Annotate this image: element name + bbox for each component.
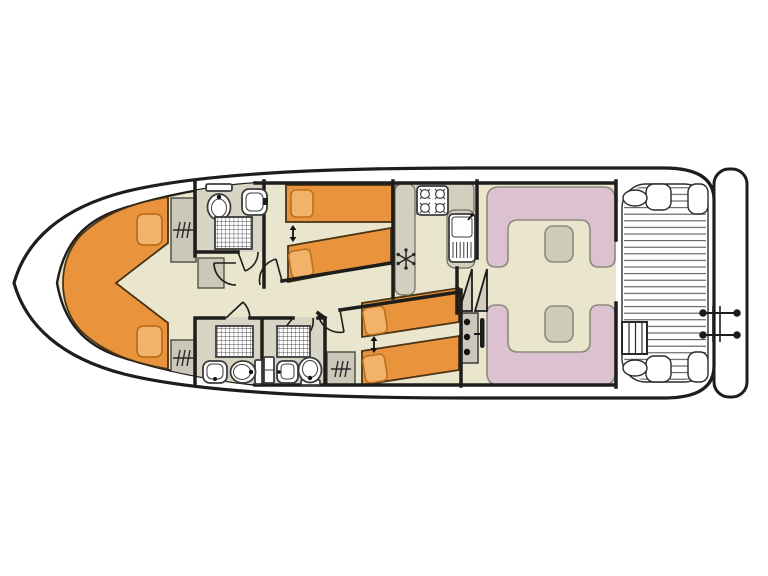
pillow — [291, 190, 313, 217]
pillow — [362, 353, 388, 383]
steering-wheel — [480, 318, 485, 348]
forward-cabin-bed — [286, 185, 392, 222]
floor-plan-page — [0, 0, 768, 576]
wardrobe — [327, 352, 355, 385]
toilet-icon — [231, 360, 263, 384]
pillow — [288, 248, 314, 278]
saloon-dinette — [487, 187, 615, 267]
swim-platform — [714, 169, 747, 397]
galley-sink-icon — [449, 213, 475, 262]
deck-steps — [622, 322, 647, 354]
wardrobe — [171, 340, 196, 376]
bathroom-cabinet — [264, 357, 274, 383]
wardrobe — [171, 198, 196, 262]
pillow — [362, 305, 388, 335]
dinette-table — [545, 226, 573, 262]
shower-icon — [277, 326, 310, 357]
sink-icon — [242, 189, 268, 215]
stove-icon — [417, 186, 448, 215]
dinette-table — [545, 306, 573, 342]
toilet-icon — [206, 184, 232, 220]
boat-floor-plan — [0, 0, 768, 576]
sink-icon — [277, 361, 298, 383]
pillow — [137, 326, 162, 357]
pillow — [137, 214, 162, 245]
toilet-icon — [299, 358, 322, 386]
sink-icon — [203, 361, 227, 383]
shower-icon — [216, 326, 253, 357]
shower-icon — [215, 217, 252, 249]
